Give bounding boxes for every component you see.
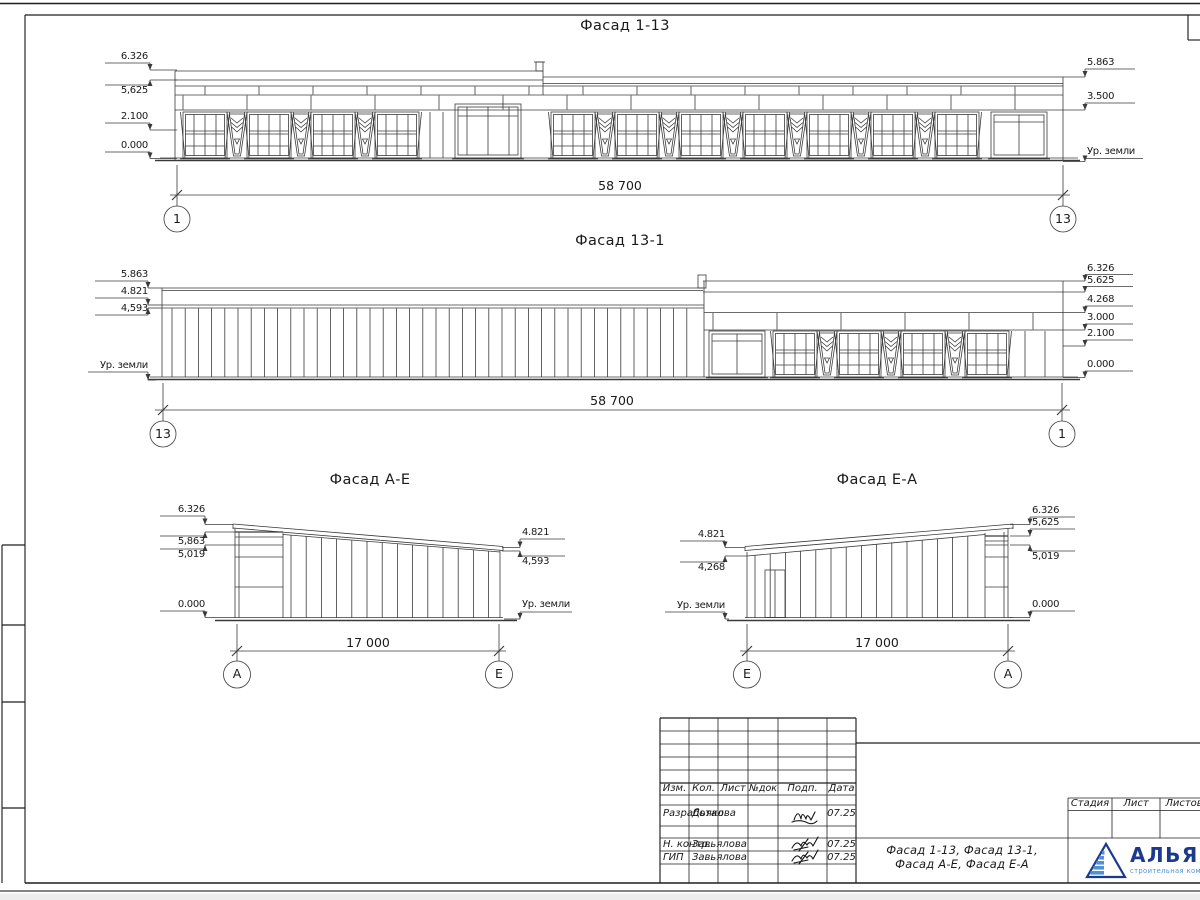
dimension-label: 17 000: [827, 636, 927, 649]
elevation-mark: [105, 152, 177, 159]
axis-label: А: [222, 667, 252, 680]
titleblock-header-izm: Изм.: [660, 784, 689, 795]
elevation-label: 5,019: [157, 550, 205, 561]
titleblock-name: Завьялова: [692, 853, 747, 864]
elevation-mark: [680, 541, 745, 548]
titleblock-sheet-header: Лист: [1112, 799, 1160, 810]
titleblock-header-ndok: №док: [748, 784, 778, 794]
company-name: АЛЬЯНС: [1130, 845, 1200, 866]
elevation-label: 6.326: [1032, 506, 1059, 517]
ground-level-label: Ур. земли: [1087, 147, 1135, 158]
dimension-label: 17 000: [318, 636, 418, 649]
elevation-label: 5,863: [157, 537, 205, 548]
elevation-label: 3.500: [1087, 92, 1114, 103]
axis-label: 1: [1047, 427, 1077, 440]
titleblock-name: Дьякова: [692, 809, 736, 820]
entrance-door: [452, 104, 524, 159]
signature-gip: [792, 850, 818, 864]
elevation-mark: [160, 611, 233, 618]
signature-ncontrol: [792, 837, 818, 851]
elevation-mark: [1010, 611, 1075, 618]
frame-side-cells: [2, 545, 25, 883]
elevation-mark: [1063, 286, 1133, 292]
elevation-label: 0.000: [1087, 360, 1114, 371]
elevation-mark: [105, 63, 177, 70]
elevation-label: 6.326: [157, 505, 205, 516]
elevation-mark: [504, 612, 572, 619]
titleblock-date: 07.25: [827, 840, 856, 851]
elevation-label: 4,593: [100, 304, 148, 315]
dimension-label: 58 700: [562, 394, 662, 407]
elevation-label: 4,593: [522, 557, 549, 568]
elevation-label: 2.100: [100, 112, 148, 123]
elevation-label: 6.326: [1087, 264, 1114, 275]
elevation-mark: [105, 123, 177, 130]
titleblock-date: 07.25: [827, 809, 856, 820]
elevation-mark: [160, 516, 233, 525]
elevation-label: 5.625: [1087, 276, 1114, 287]
elevation-label: 4.268: [1087, 295, 1114, 306]
titleblock-header-podp: Подп.: [778, 784, 827, 795]
elevation-label: 0.000: [1032, 600, 1059, 611]
company-logo-icon: [1087, 844, 1125, 877]
elevation-label: 5,625: [1032, 518, 1059, 529]
elevation-label: 0.000: [100, 141, 148, 152]
ground-level-label: Ур. земли: [665, 601, 725, 612]
dimension-label: 58 700: [570, 179, 670, 192]
elevation-mark: [1063, 340, 1133, 346]
titleblock-stage-header: Стадия: [1068, 799, 1112, 810]
elevation-mark: [1063, 103, 1135, 110]
ground-level-label: Ур. земли: [88, 361, 148, 372]
titleblock-role: ГИП: [663, 853, 684, 864]
elevation-label: 4.821: [522, 528, 549, 539]
elevation-mark: [1063, 69, 1135, 77]
axis-label: 13: [1048, 212, 1078, 225]
elevation-label: 4.821: [677, 530, 725, 541]
signature-developer: [792, 812, 817, 824]
elevation-label: 0.000: [157, 600, 205, 611]
axis-label: 1: [162, 212, 192, 225]
titleblock-date: 07.25: [827, 853, 856, 864]
axis-label: 13: [148, 427, 178, 440]
elevation-label: 5.863: [1087, 58, 1114, 69]
document-title-line1: Фасад 1-13, Фасад 13-1,: [858, 844, 1066, 856]
elevation-label: 5,019: [1032, 552, 1059, 563]
sheet-frame: [0, 4, 1200, 900]
facade-e-a-drawing: [665, 517, 1075, 688]
elevation-label: 5,625: [100, 86, 148, 97]
facade-13-1-title: Фасад 13-1: [520, 234, 720, 249]
axis-label: Е: [732, 667, 762, 680]
elevation-label: 4,268: [677, 563, 725, 574]
facade-e-a-title: Фасад Е-А: [777, 473, 977, 488]
elevation-label: 3.000: [1087, 313, 1114, 324]
titleblock-name: Завьялова: [692, 840, 747, 851]
axis-label: Е: [484, 667, 514, 680]
titleblock-sheets-header: Листов: [1160, 799, 1200, 810]
elevation-mark: [502, 539, 565, 548]
elevation-mark: [88, 372, 156, 380]
facade-1-13-drawing: [105, 62, 1143, 232]
document-title-line2: Фасад А-Е, Фасад Е-А: [858, 858, 1066, 870]
elevation-label: 4.821: [100, 287, 148, 298]
titleblock-header-list: Лист: [718, 784, 748, 795]
facade-13-1-drawing: [88, 275, 1133, 448]
drawing-canvas: [0, 0, 1200, 900]
company-tagline: строительная компания: [1130, 868, 1200, 875]
side-door: [988, 112, 1050, 159]
ground-level-label: Ур. земли: [522, 600, 570, 611]
facade-a-e-drawing: [160, 516, 572, 688]
drawing-sheet: Фасад 1-13 Фасад 13-1 Фасад А-Е Фасад Е-…: [0, 0, 1200, 900]
axis-label: А: [993, 667, 1023, 680]
facade-a-e-title: Фасад А-Е: [270, 473, 470, 488]
titleblock-header-kol: Кол.: [689, 784, 718, 795]
elevation-mark: [1063, 371, 1133, 378]
side-door: [706, 331, 768, 378]
elevation-label: 5.863: [100, 270, 148, 281]
elevation-mark: [665, 612, 729, 619]
titleblock-header-data: Дата: [827, 784, 856, 795]
elevation-mark: [1010, 529, 1075, 536]
elevation-label: 2.100: [1087, 329, 1114, 340]
elevation-label: 6.326: [100, 52, 148, 63]
facade-1-13-title: Фасад 1-13: [525, 19, 725, 34]
